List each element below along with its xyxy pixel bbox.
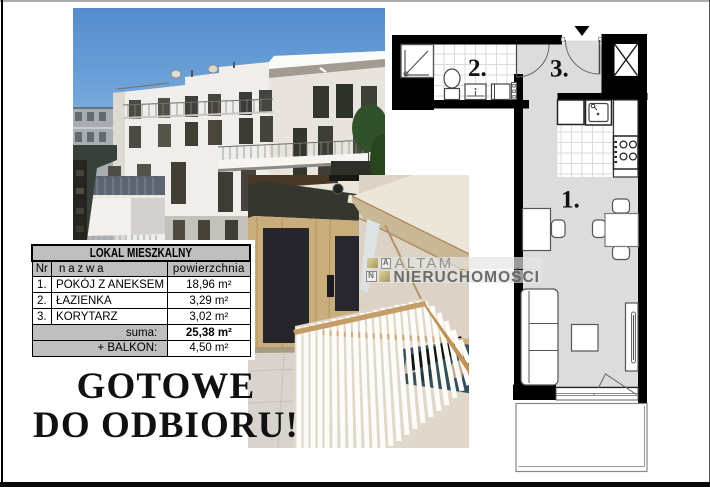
svg-text:2.: 2. bbox=[468, 55, 487, 82]
svg-text:1.: 1. bbox=[561, 187, 580, 214]
svg-text:3.: 3. bbox=[550, 55, 569, 82]
